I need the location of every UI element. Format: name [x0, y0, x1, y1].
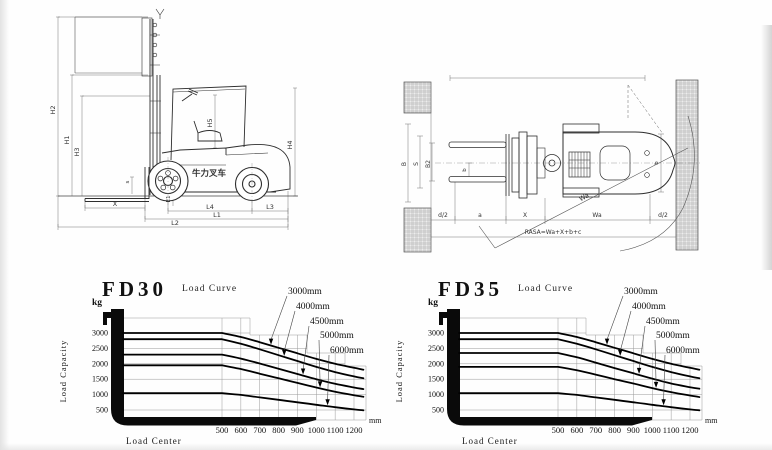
dim-label: d/2: [438, 212, 448, 219]
y-tick-label: 1000: [428, 390, 444, 399]
y-axis-title: Load Capacity: [58, 340, 68, 403]
x-tick-label: 800: [272, 425, 285, 435]
dim-label: H4: [286, 140, 294, 149]
fd30-load-curve-chart: FD30 Load Curve 3000mm4000mm4500mm5000mm…: [58, 273, 408, 450]
y-tick-label: 3000: [92, 329, 108, 338]
wall-right: [676, 80, 698, 250]
top-view-labels: BSB2bbWad/2aXWad/2RASA=Wa+X+b+c: [401, 160, 668, 236]
swing-wedge: [628, 85, 663, 134]
mast-height-label: 4500mm: [310, 317, 344, 327]
y-unit-label: kg: [428, 298, 438, 308]
x-tick-label: 900: [291, 425, 304, 435]
dim-label: H3: [73, 147, 81, 156]
page-edge-left: [0, 0, 9, 450]
x-tick-label: 700: [589, 425, 602, 435]
forklift-side-view-drawing: H2H1H3sH5H4E1XL4L3L1L2牛力叉车: [30, 5, 320, 255]
y-tick-label: 500: [96, 406, 108, 415]
fork-axis-shape: [103, 309, 316, 426]
y-tick-label: 2500: [92, 344, 108, 353]
y-unit-label: kg: [92, 298, 102, 308]
load-curves: [123, 333, 363, 410]
fd35-load-curve-chart: FD35 Load Curve 3000mm4000mm4500mm5000mm…: [394, 273, 744, 450]
mast-height-label: 4500mm: [646, 317, 680, 327]
mast-height-label: 5000mm: [320, 331, 354, 341]
y-axis-title: Load Capacity: [394, 340, 404, 403]
x-tick-label: 600: [234, 425, 247, 435]
y-tick-label: 500: [432, 406, 444, 415]
y-tick-label: 1000: [92, 390, 108, 399]
dim-label: d/2: [658, 212, 668, 219]
y-tick-label: 2500: [428, 344, 444, 353]
y-tick-label: 1500: [428, 375, 444, 384]
mast-carriage-top: [506, 132, 561, 198]
x-tick-label: 1200: [681, 425, 698, 435]
datasheet-page: H2H1H3sH5H4E1XL4L3L1L2牛力叉车: [0, 0, 772, 450]
load-curves: [459, 333, 699, 410]
dim-label: B: [401, 162, 408, 166]
mast-height-label: 5000mm: [656, 331, 690, 341]
dim-label: s: [125, 180, 131, 183]
x-tick-label: 1000: [308, 425, 325, 435]
forklift-top-art: [435, 85, 700, 251]
dim-label: L3: [266, 203, 274, 211]
dim-label: Wa: [592, 212, 602, 219]
dim-label: H1: [63, 135, 71, 144]
mast-height-label: 6000mm: [666, 346, 700, 356]
dim-label: X: [523, 212, 527, 219]
dim-label: L4: [206, 203, 214, 211]
x-unit-label: mm: [705, 416, 718, 425]
page-edge-bottom: [0, 443, 772, 450]
dim-label: L1: [213, 211, 221, 219]
y-tick-label: 3000: [428, 329, 444, 338]
dim-label: RASA=Wa+X+b+c: [525, 229, 582, 236]
wall-bottom-left: [404, 208, 431, 252]
dim-label: H5: [206, 118, 214, 127]
load-curve-svg: 3000mm4000mm4500mm5000mm6000mmkgmm300025…: [58, 273, 408, 450]
dim-label: X: [113, 200, 118, 208]
dim-label: H2: [49, 105, 57, 114]
body-top: [563, 124, 675, 197]
forks-top: [449, 142, 506, 182]
y-tick-label: 1500: [92, 375, 108, 384]
mast-height-label: 4000mm: [296, 302, 330, 312]
engine-grille: [569, 152, 590, 177]
x-tick-label: 700: [253, 425, 266, 435]
raised-load-outline: [75, 17, 148, 73]
x-tick-label: 900: [627, 425, 640, 435]
mast-height-label: 6000mm: [330, 346, 364, 356]
dim-label: E1: [166, 196, 172, 203]
x-unit-label: mm: [369, 416, 382, 425]
y-tick-label: 2000: [428, 359, 444, 368]
dim-label: b: [462, 168, 468, 172]
mast-height-label: 3000mm: [288, 287, 322, 297]
x-tick-label: 800: [608, 425, 621, 435]
wall-top-left: [404, 82, 431, 113]
x-tick-label: 600: [570, 425, 583, 435]
mast-height-label: 3000mm: [624, 287, 658, 297]
x-tick-label: 1200: [345, 425, 362, 435]
dim-label: B2: [425, 160, 432, 168]
mast-height-label: 4000mm: [632, 302, 666, 312]
dim-label: S: [413, 162, 420, 166]
x-tick-label: 500: [216, 425, 229, 435]
x-tick-label: 1100: [327, 425, 344, 435]
load-curve-svg: 3000mm4000mm4500mm5000mm6000mmkgmm300025…: [394, 273, 744, 450]
dim-label: a: [478, 212, 482, 219]
curve-4500mm: [123, 355, 363, 390]
forklift-side-art: [58, 9, 298, 205]
x-tick-label: 500: [552, 425, 565, 435]
forklift-top-view-drawing: BSB2bbWad/2aXWad/2RASA=Wa+X+b+c: [395, 58, 772, 258]
x-tick-label: 1000: [644, 425, 661, 435]
page-edge-right: [761, 25, 772, 270]
dim-label: Wa: [578, 191, 591, 203]
dim-label: L2: [171, 219, 179, 227]
x-tick-label: 1100: [663, 425, 680, 435]
brand-text: 牛力叉车: [192, 168, 227, 179]
y-tick-label: 2000: [92, 359, 108, 368]
dim-label: b: [654, 161, 660, 165]
